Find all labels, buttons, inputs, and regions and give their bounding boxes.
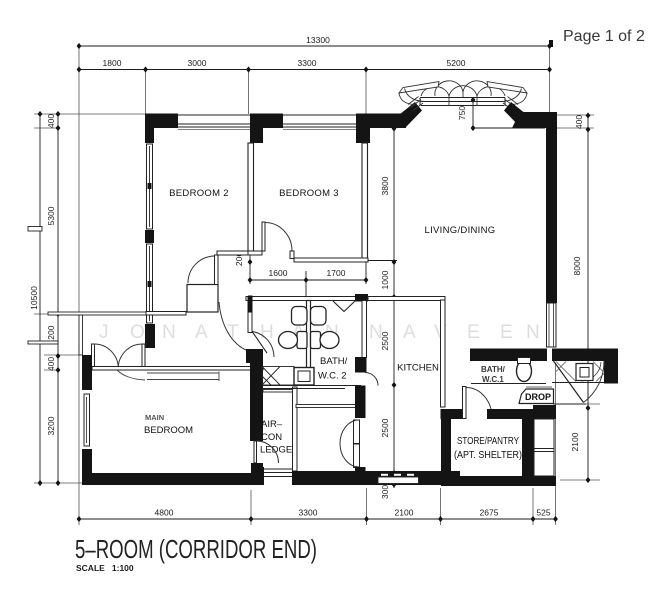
svg-text:3000: 3000 bbox=[188, 58, 207, 68]
svg-text:3800: 3800 bbox=[380, 176, 390, 195]
svg-text:10500: 10500 bbox=[29, 286, 39, 310]
svg-text:J: J bbox=[99, 322, 109, 343]
svg-text:400: 400 bbox=[46, 357, 56, 371]
svg-text:AIR–: AIR– bbox=[261, 419, 283, 430]
svg-text:DROP: DROP bbox=[525, 392, 551, 402]
svg-text:KITCHEN: KITCHEN bbox=[397, 363, 439, 374]
svg-text:MAIN: MAIN bbox=[145, 413, 164, 422]
svg-text:CON: CON bbox=[261, 432, 282, 443]
svg-text:5300: 5300 bbox=[46, 206, 56, 225]
svg-text:1600: 1600 bbox=[269, 268, 288, 278]
svg-text:N: N bbox=[369, 322, 383, 343]
svg-text:525: 525 bbox=[536, 508, 550, 518]
svg-text:750: 750 bbox=[457, 106, 467, 120]
svg-text:E: E bbox=[467, 322, 480, 343]
svg-text:STORE/PANTRY: STORE/PANTRY bbox=[457, 435, 519, 447]
svg-text:5–ROOM (CORRIDOR END): 5–ROOM (CORRIDOR END) bbox=[75, 534, 317, 564]
svg-text:(APT. SHELTER): (APT. SHELTER) bbox=[454, 449, 522, 461]
svg-text:2100: 2100 bbox=[570, 432, 580, 451]
svg-text:3300: 3300 bbox=[299, 508, 318, 518]
svg-text:3200: 3200 bbox=[46, 416, 56, 435]
svg-text:1700: 1700 bbox=[327, 268, 346, 278]
svg-text:3300: 3300 bbox=[298, 58, 317, 68]
svg-text:BEDROOM 2: BEDROOM 2 bbox=[169, 188, 229, 199]
svg-text:Page 1 of 2: Page 1 of 2 bbox=[563, 28, 645, 45]
svg-text:N: N bbox=[526, 322, 540, 343]
svg-text:1000: 1000 bbox=[380, 270, 390, 289]
svg-text:BATH/: BATH/ bbox=[481, 365, 506, 374]
svg-text:W.C. 2: W.C. 2 bbox=[318, 371, 347, 382]
svg-text:E: E bbox=[500, 322, 513, 343]
svg-text:5200: 5200 bbox=[447, 58, 466, 68]
svg-text:A: A bbox=[403, 322, 416, 343]
svg-text:300: 300 bbox=[380, 485, 390, 499]
svg-text:O: O bbox=[130, 322, 145, 343]
svg-text:400: 400 bbox=[574, 115, 584, 129]
svg-text:2675: 2675 bbox=[480, 508, 499, 518]
svg-text:BEDROOM: BEDROOM bbox=[144, 425, 193, 436]
svg-text:LEDGE: LEDGE bbox=[260, 445, 292, 456]
svg-text:BEDROOM 3: BEDROOM 3 bbox=[279, 188, 339, 199]
svg-text:2500: 2500 bbox=[380, 418, 390, 437]
svg-text:LIVING/DINING: LIVING/DINING bbox=[425, 225, 496, 236]
svg-text:1800: 1800 bbox=[103, 58, 122, 68]
svg-text:8000: 8000 bbox=[572, 256, 582, 275]
svg-text:SCALE 1:100: SCALE 1:100 bbox=[76, 563, 134, 573]
svg-text:2100: 2100 bbox=[395, 508, 414, 518]
svg-text:4800: 4800 bbox=[155, 508, 174, 518]
svg-text:W.C.1: W.C.1 bbox=[482, 375, 504, 384]
svg-text:400: 400 bbox=[46, 114, 56, 128]
svg-text:13300: 13300 bbox=[306, 35, 330, 45]
svg-text:BATH/: BATH/ bbox=[320, 356, 348, 367]
svg-text:A: A bbox=[195, 322, 208, 343]
svg-text:N: N bbox=[162, 322, 176, 343]
